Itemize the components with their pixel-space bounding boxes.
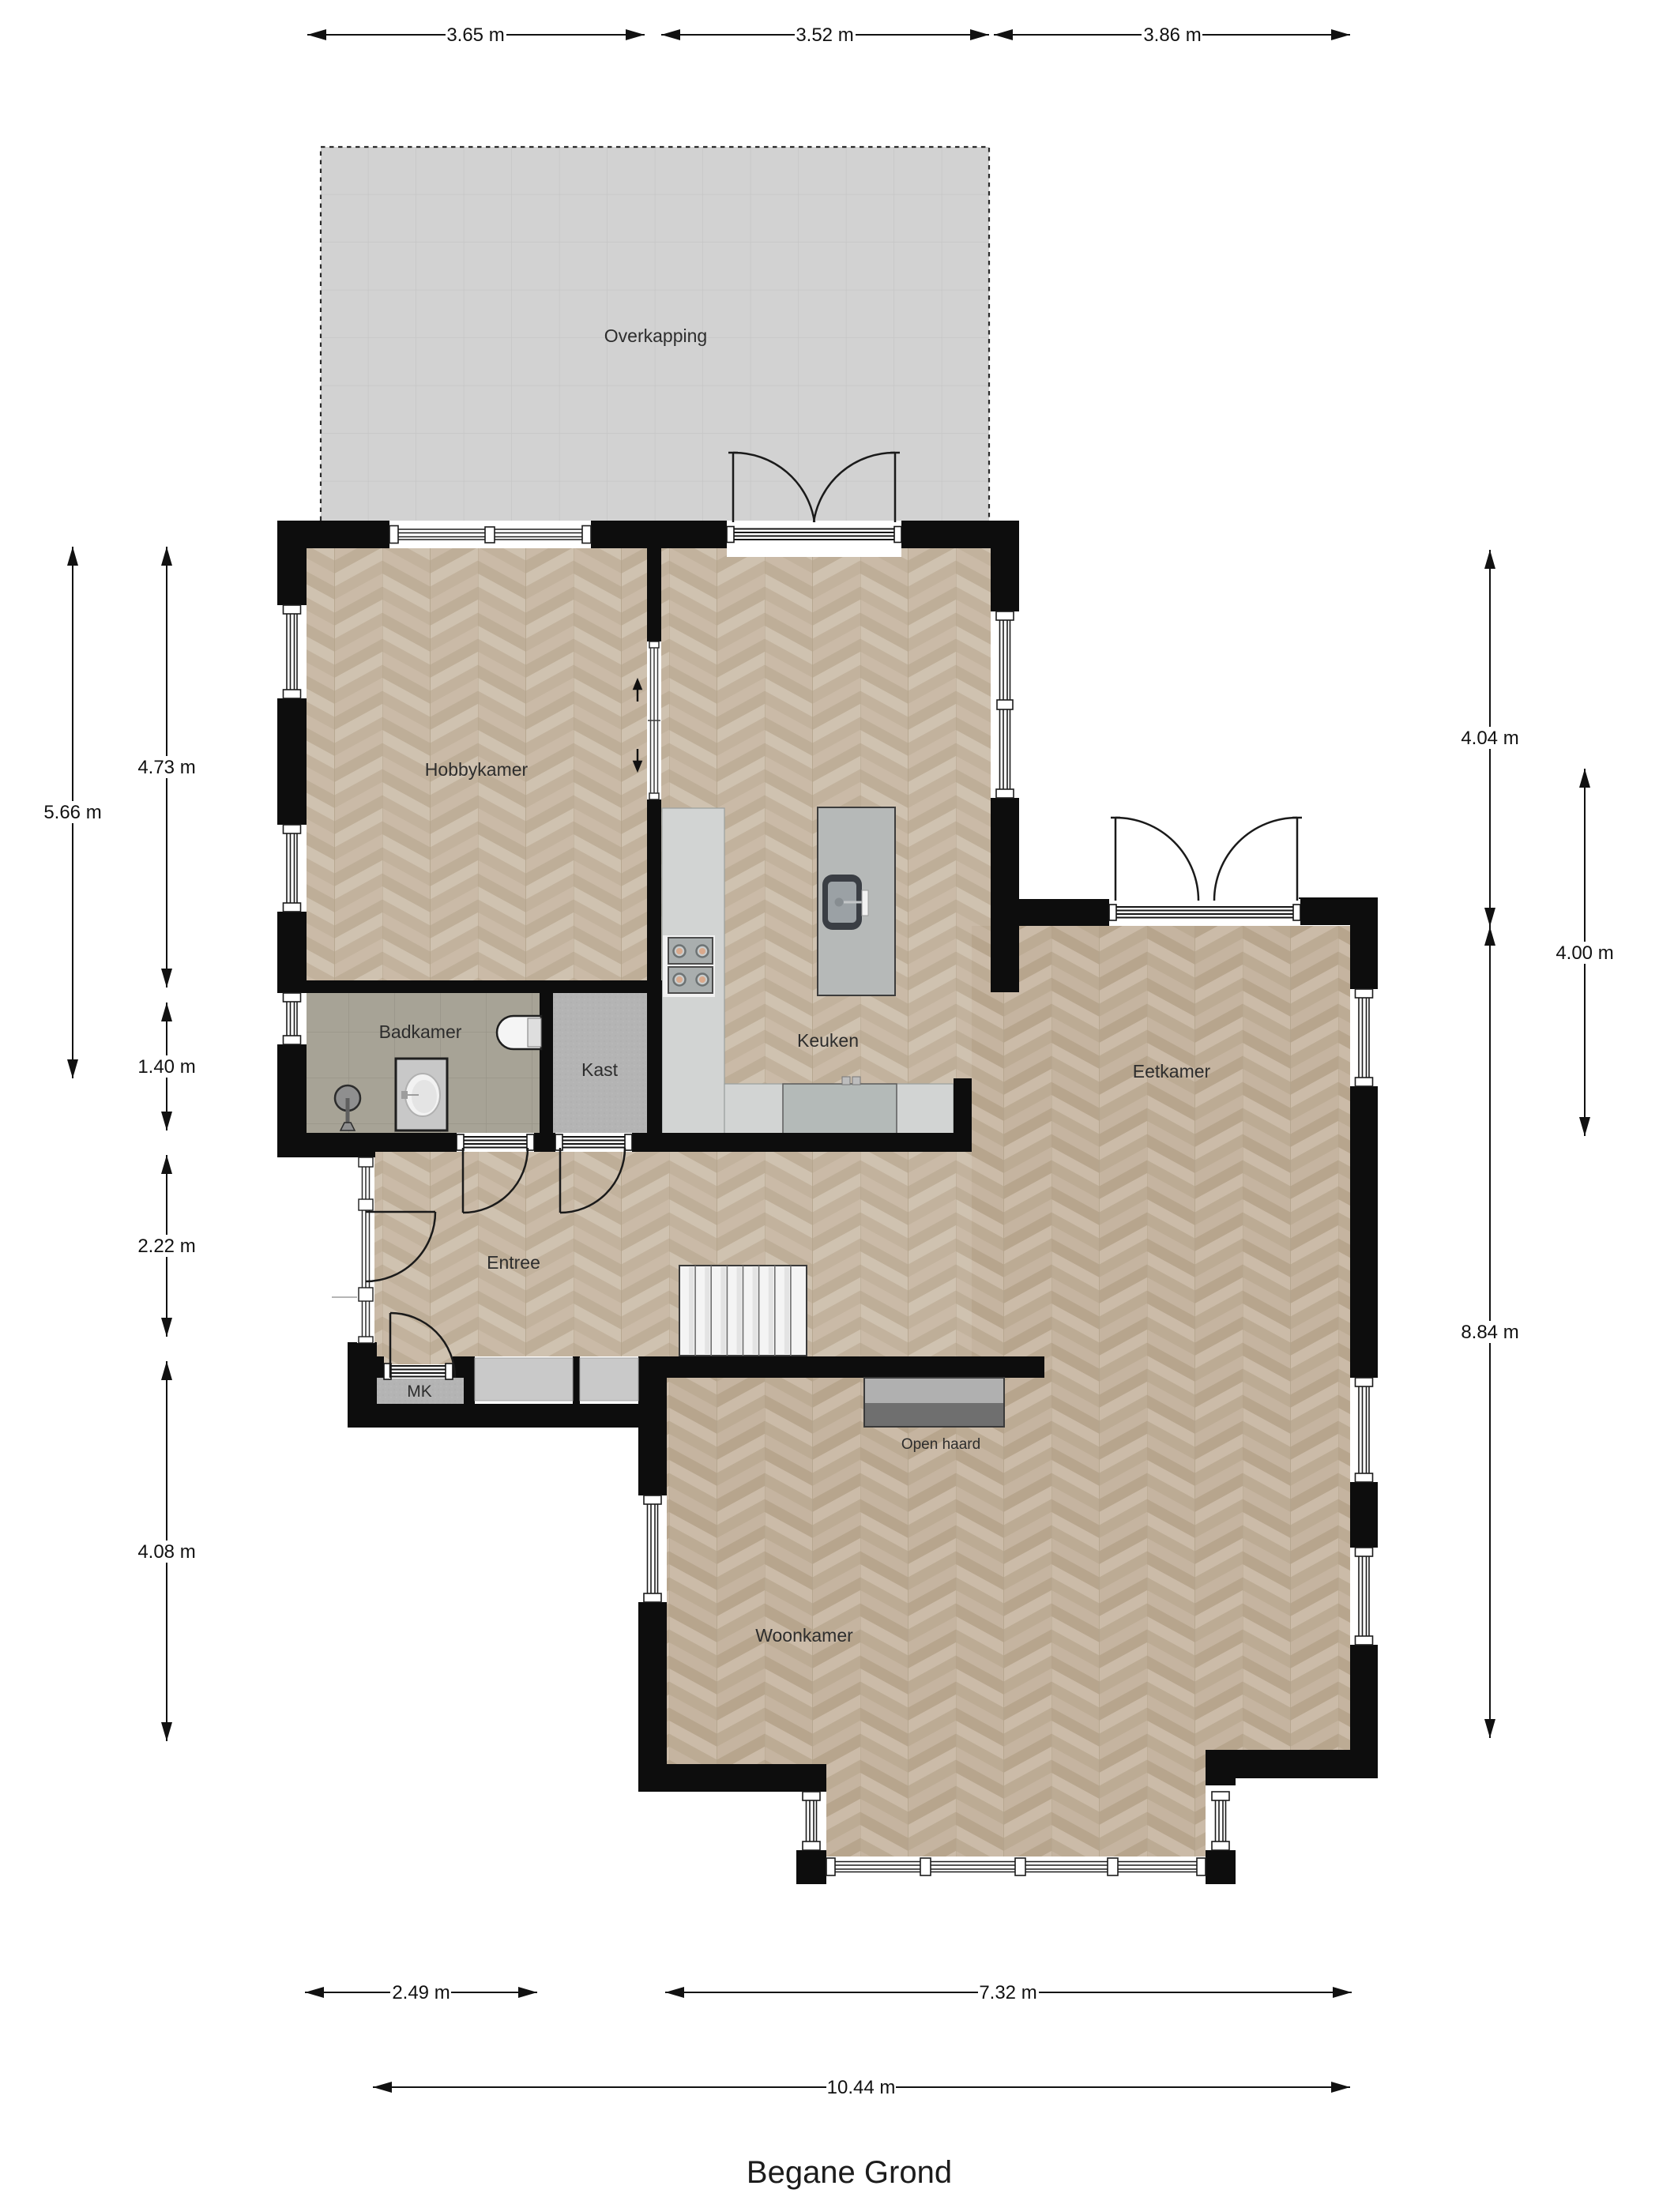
svg-text:Begane Grond: Begane Grond [747, 2155, 952, 2190]
svg-text:2.49 m: 2.49 m [392, 1982, 450, 2003]
svg-text:Keuken: Keuken [797, 1030, 859, 1051]
svg-text:4.08 m: 4.08 m [137, 1541, 195, 1563]
svg-text:10.44 m: 10.44 m [827, 2077, 896, 2098]
svg-text:MK: MK [407, 1382, 432, 1401]
svg-text:Kast: Kast [581, 1059, 619, 1080]
svg-text:1.40 m: 1.40 m [137, 1056, 195, 1078]
svg-text:4.73 m: 4.73 m [137, 757, 195, 778]
svg-text:Badkamer: Badkamer [379, 1021, 462, 1042]
svg-text:3.65 m: 3.65 m [446, 24, 504, 46]
svg-text:8.84 m: 8.84 m [1461, 1322, 1518, 1343]
svg-text:Entree: Entree [487, 1252, 540, 1273]
svg-text:Overkapping: Overkapping [604, 325, 707, 346]
svg-text:4.04 m: 4.04 m [1461, 728, 1518, 749]
svg-text:Open haard: Open haard [901, 1436, 980, 1453]
svg-text:5.66 m: 5.66 m [43, 802, 101, 823]
svg-text:Woonkamer: Woonkamer [755, 1625, 853, 1646]
svg-text:7.32 m: 7.32 m [979, 1982, 1036, 2003]
svg-text:4.00 m: 4.00 m [1556, 942, 1613, 964]
svg-text:2.22 m: 2.22 m [137, 1236, 195, 1257]
svg-text:3.86 m: 3.86 m [1143, 24, 1201, 46]
svg-text:Eetkamer: Eetkamer [1133, 1061, 1211, 1082]
svg-text:Hobbykamer: Hobbykamer [425, 759, 529, 780]
svg-text:3.52 m: 3.52 m [796, 24, 853, 46]
